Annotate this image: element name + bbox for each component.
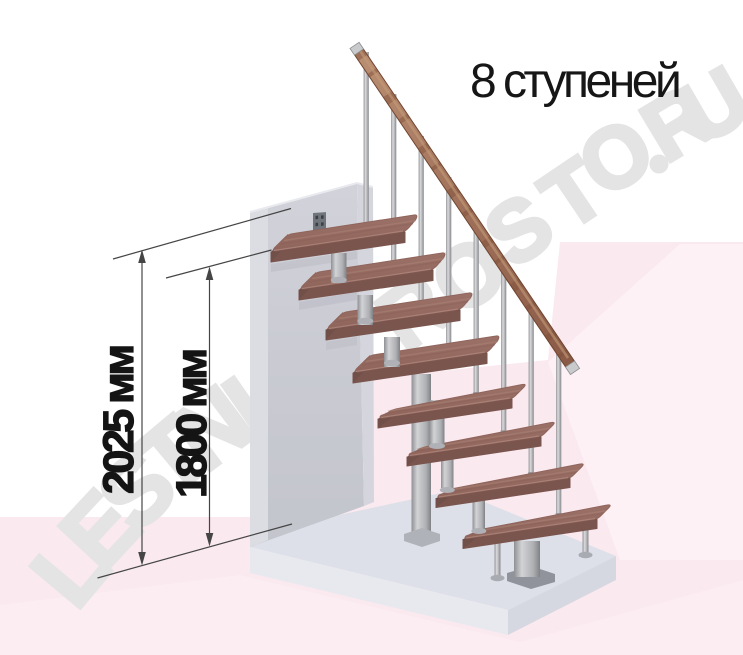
svg-text:2025 мм: 2025 мм bbox=[95, 347, 143, 494]
svg-text:1800 мм: 1800 мм bbox=[168, 351, 216, 498]
svg-text:8 ступеней: 8 ступеней bbox=[470, 55, 679, 108]
